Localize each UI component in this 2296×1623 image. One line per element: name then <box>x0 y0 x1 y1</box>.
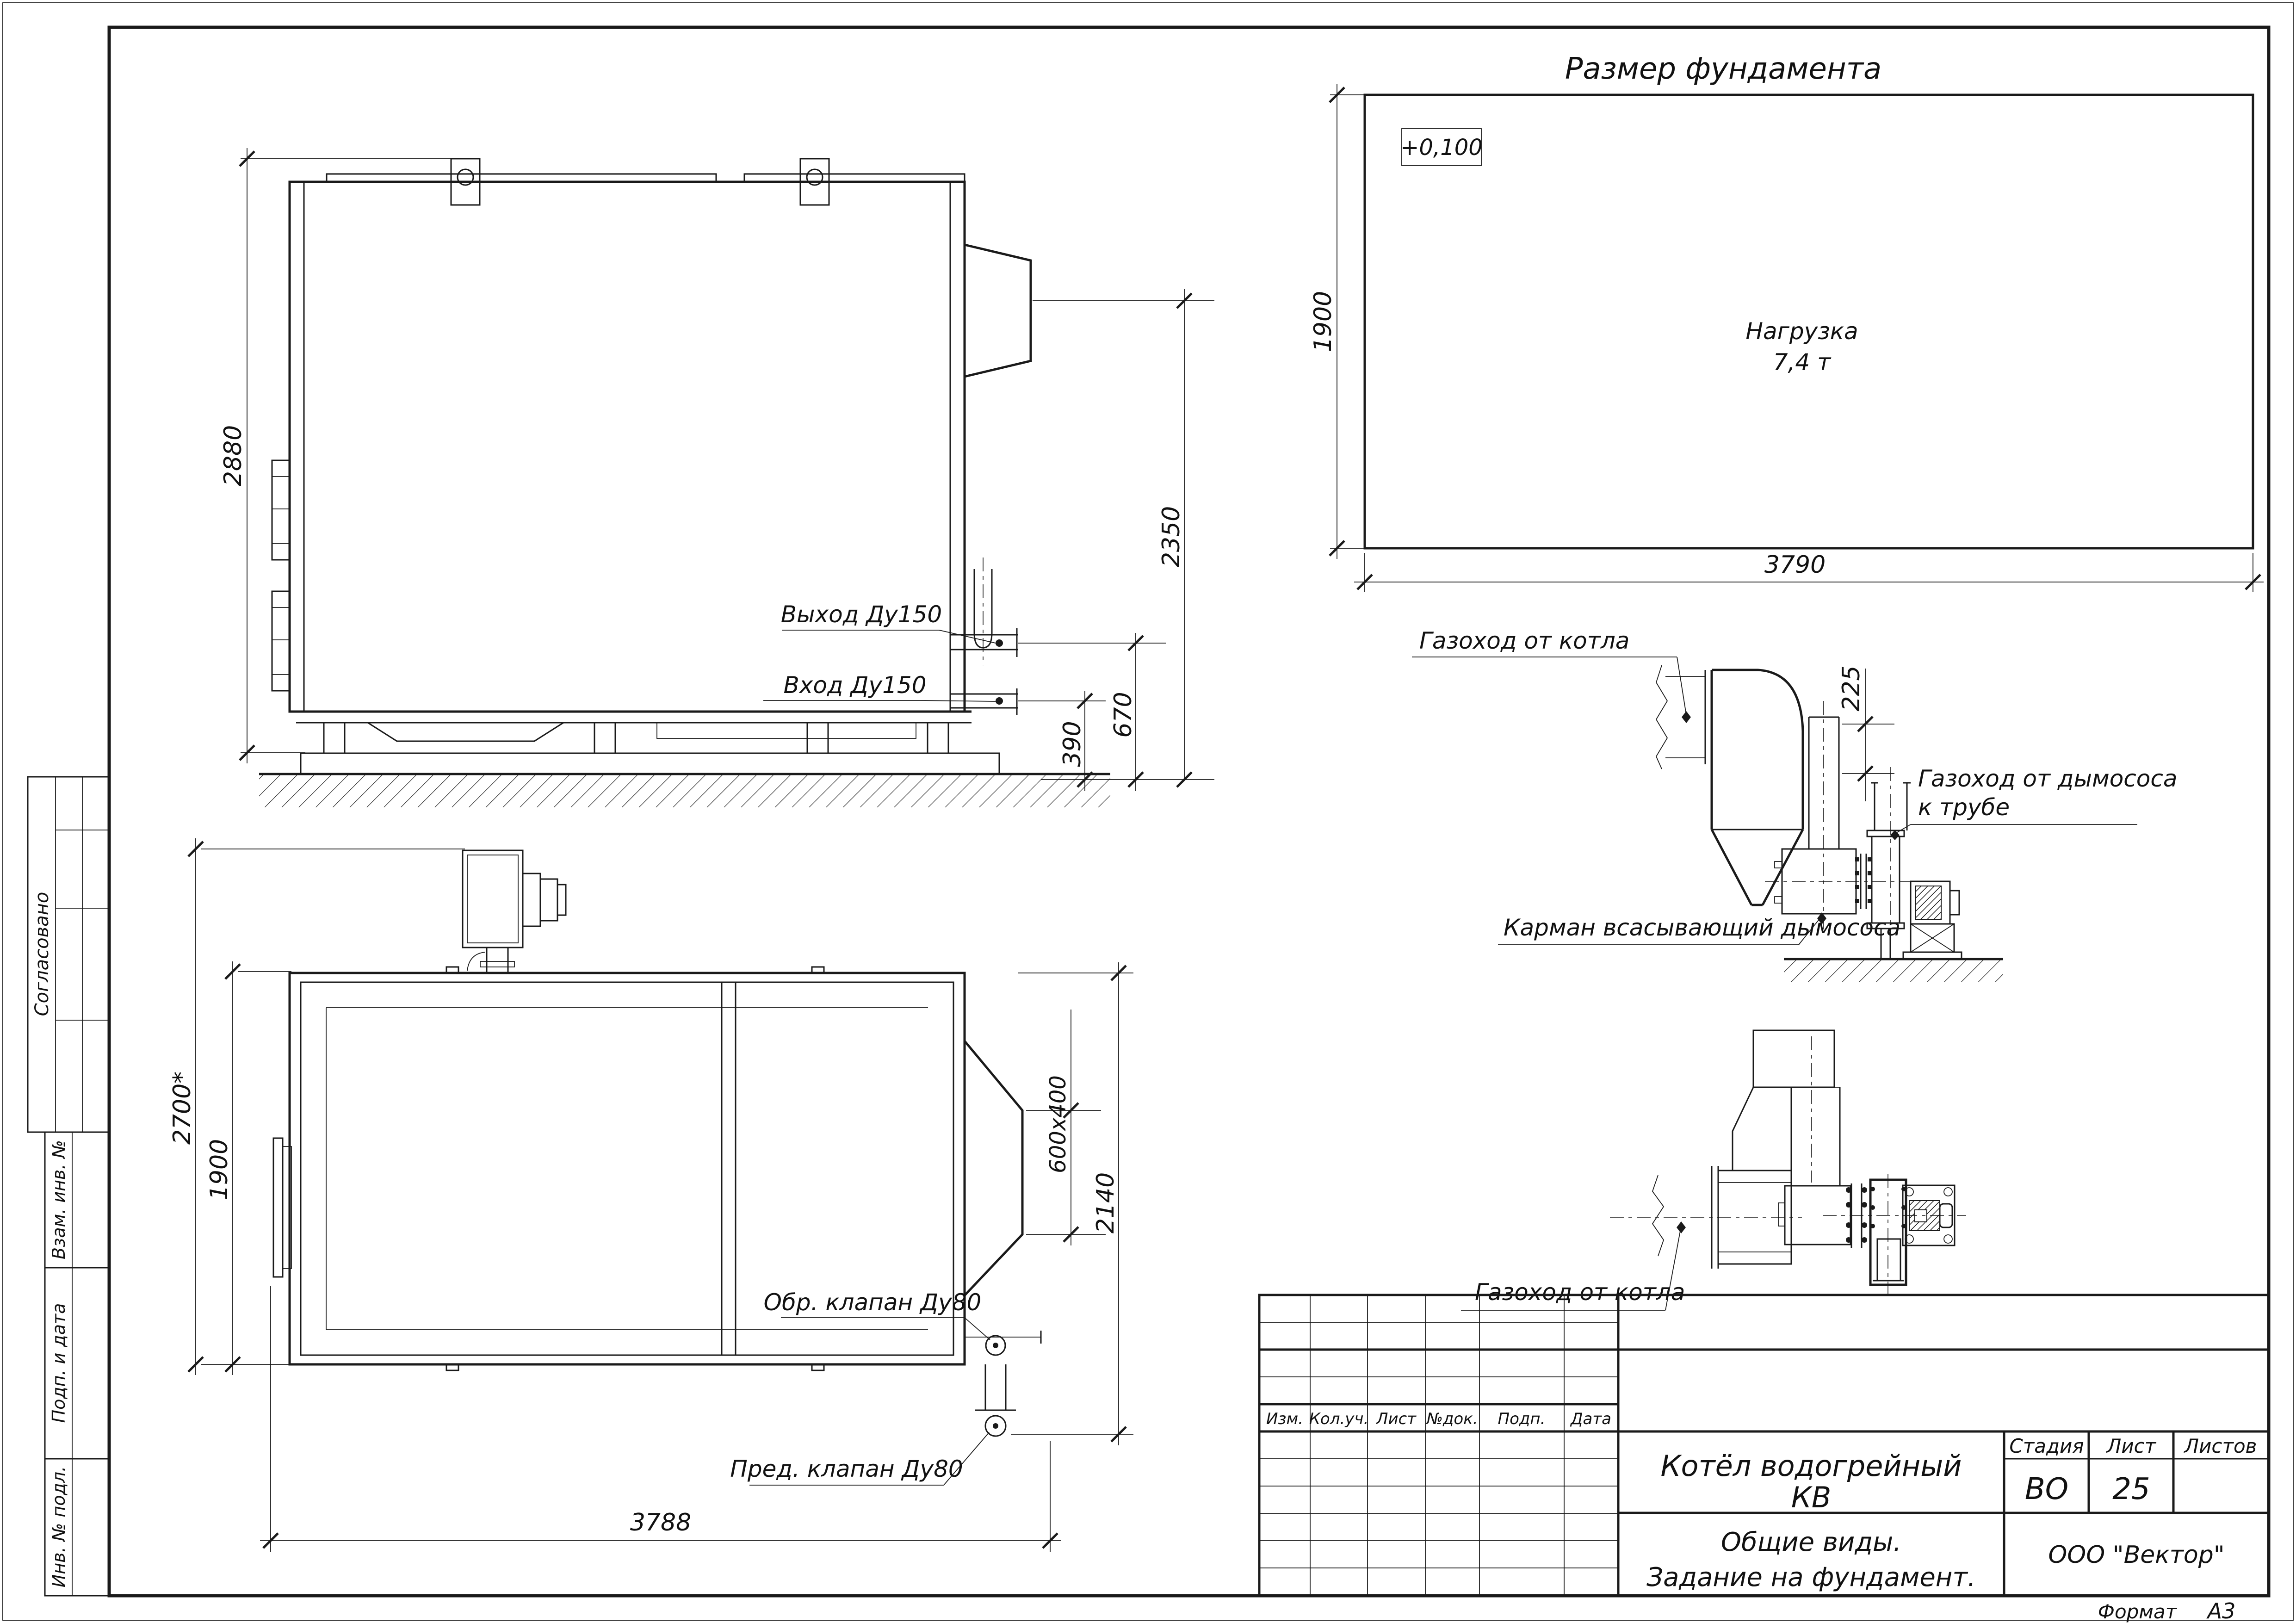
svg-text:Выход Ду150: Выход Ду150 <box>781 601 942 628</box>
svg-text:Обр. клапан Ду80: Обр. клапан Ду80 <box>764 1289 982 1316</box>
sheet-label: Лист <box>2106 1435 2157 1457</box>
svg-text:1900: 1900 <box>205 1139 233 1200</box>
svg-text:2880: 2880 <box>219 425 247 486</box>
stamp-replace-inv: Взам. инв. № <box>49 1140 69 1259</box>
product-name-1: Котёл водогрейный <box>1661 1449 1962 1483</box>
stamp-inv-orig: Инв. № подл. <box>49 1466 69 1587</box>
sheet-title-1: Общие виды. <box>1721 1527 1901 1557</box>
format-value: А3 <box>2206 1598 2236 1623</box>
svg-text:2700*: 2700* <box>168 1072 196 1145</box>
sheets-label: Листов <box>2184 1435 2257 1457</box>
label-to-chimney-1: Газоход от дымососа <box>1918 765 2178 792</box>
svg-text:+0,100: +0,100 <box>1400 135 1483 161</box>
company-name: ООО "Вектор" <box>2048 1541 2224 1569</box>
svg-text:2140: 2140 <box>1092 1172 1120 1233</box>
stage-label: Стадия <box>2009 1435 2084 1457</box>
foundation-title: Размер фундамента <box>1565 52 1881 86</box>
svg-text:Вход Ду150: Вход Ду150 <box>783 672 926 699</box>
label-pocket: Карман всасывающий дымососа <box>1504 914 1900 941</box>
svg-text:225: 225 <box>1838 665 1865 711</box>
label-from-boiler-elev: Газоход от котла <box>1419 627 1629 654</box>
rev-header-koluch: Кол.уч. <box>1309 1410 1369 1428</box>
rev-header-list: Лист <box>1375 1410 1417 1428</box>
rev-header-ndok: №док. <box>1425 1410 1478 1428</box>
svg-text:390: 390 <box>1058 721 1086 767</box>
svg-text:3790: 3790 <box>1764 551 1826 579</box>
stage-value: ВО <box>2025 1472 2068 1506</box>
drawing-canvas: Согласовано Взам. инв. № Подп. и дата Ин… <box>0 0 2296 1623</box>
rev-header-data: Дата <box>1570 1410 1611 1428</box>
svg-text:2350: 2350 <box>1157 506 1185 567</box>
rev-header-podp: Подп. <box>1498 1410 1546 1428</box>
format-label: Формат <box>2098 1600 2178 1623</box>
svg-text:3788: 3788 <box>630 1509 691 1536</box>
drawing-sheet: Согласовано Взам. инв. № Подп. и дата Ин… <box>0 0 2296 1623</box>
ground-hatch <box>259 774 1110 807</box>
sheet-value: 25 <box>2112 1472 2150 1506</box>
label-to-chimney-2: к трубе <box>1918 794 2010 821</box>
sheet-title-2: Задание на фундамент. <box>1646 1562 1976 1592</box>
svg-text:Пред. клапан Ду80: Пред. клапан Ду80 <box>730 1456 963 1482</box>
svg-text:Нагрузка: Нагрузка <box>1745 318 1858 345</box>
product-name-2: КВ <box>1791 1481 1832 1514</box>
svg-text:670: 670 <box>1109 692 1137 737</box>
stamp-approved: Согласовано <box>31 892 53 1016</box>
svg-text:1900: 1900 <box>1309 291 1337 352</box>
svg-text:7,4 т: 7,4 т <box>1773 349 1832 376</box>
stamp-sign-date: Подп. и дата <box>49 1303 69 1423</box>
rev-header-izm: Изм. <box>1266 1410 1303 1428</box>
label-from-boiler-plan: Газоход от котла <box>1475 1279 1685 1306</box>
format-note: Формат А3 <box>2098 1598 2236 1623</box>
svg-text:600х400: 600х400 <box>1045 1075 1071 1173</box>
